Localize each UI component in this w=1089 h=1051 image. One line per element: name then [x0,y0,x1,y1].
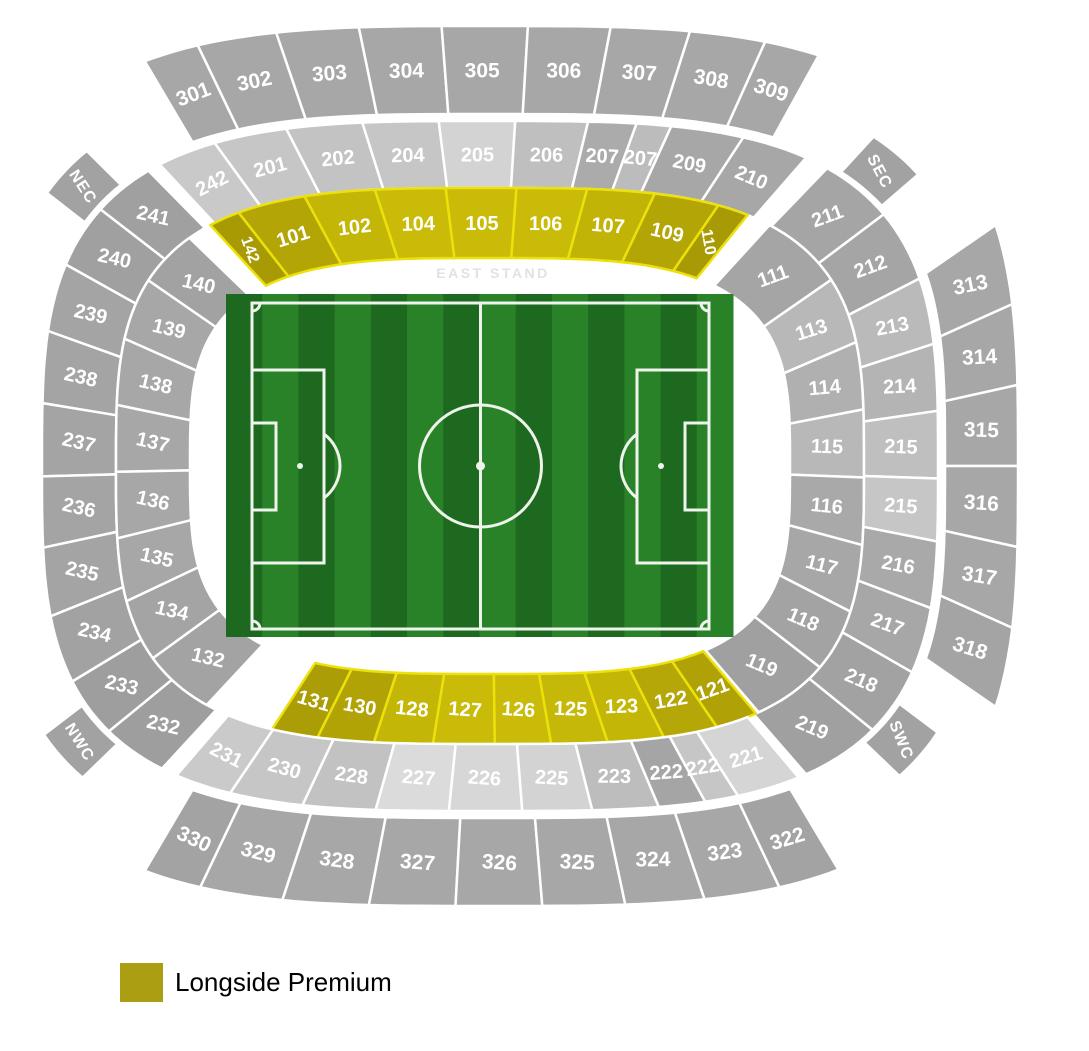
section-123-label: 123 [604,695,638,718]
section-328-label: 328 [318,847,356,875]
section-126-label: 126 [501,698,536,722]
section-106-label: 106 [529,213,563,235]
section-115-label: 115 [810,435,843,458]
section-107-label: 107 [590,214,625,239]
legend: Longside Premium [120,963,392,1002]
section-315-label: 315 [963,418,999,442]
grass-stripe [552,294,589,637]
section-227-label: 227 [401,766,436,791]
left-penalty-spot [297,463,303,469]
section-116-label: 116 [810,494,844,519]
section-207-2-label: 207 [623,146,658,171]
stadium-seating-map: NECSECNWCSWC3013023033043053063073083092… [0,0,1089,1051]
grass-stripe [443,294,480,637]
section-304-label: 304 [389,59,425,83]
section-307-label: 307 [621,61,657,86]
section-125-label: 125 [553,698,587,721]
section-127-label: 127 [448,698,483,722]
legend-swatch-longside-premium [120,963,163,1002]
football-pitch [226,294,734,637]
section-207-label: 207 [585,145,619,169]
section-326-label: 326 [481,850,518,875]
section-323-label: 323 [706,839,744,866]
section-102-label: 102 [337,215,373,241]
grass-stripe [516,294,553,637]
section-225-label: 225 [534,766,569,790]
section-206-label: 206 [530,144,564,166]
grass-stripe [661,294,698,637]
section-128-label: 128 [394,697,429,722]
section-324-label: 324 [635,848,671,871]
section-202-label: 202 [320,146,355,171]
stadium-bowl-svg: NECSECNWCSWC3013023033043053063073083092… [0,0,1089,1051]
grass-stripe [226,294,263,637]
legend-label: Longside Premium [175,967,392,998]
section-305-label: 305 [465,59,500,82]
section-316-label: 316 [963,491,1000,516]
section-214-label: 214 [883,375,918,398]
grass-stripe [407,294,444,637]
section-215-2-label: 215 [883,494,918,519]
grass-stripe [480,294,517,637]
section-223-label: 223 [598,766,632,788]
grass-stripe [588,294,625,637]
grass-stripe [298,294,335,637]
grass-stripe [371,294,408,637]
section-226-label: 226 [467,766,502,790]
section-104-label: 104 [401,213,436,236]
grass-stripe [697,294,734,637]
grass-stripe [624,294,661,637]
section-204-label: 204 [391,145,426,168]
section-114-label: 114 [808,376,843,401]
center-spot [476,462,485,471]
section-303-label: 303 [311,61,348,87]
section-306-label: 306 [546,59,581,82]
right-penalty-spot [658,463,664,469]
section-222-label: 222 [649,761,684,785]
section-327-label: 327 [399,850,436,876]
section-205-label: 205 [461,145,494,167]
east-stand-label: EAST STAND [418,265,568,281]
section-105-label: 105 [465,213,498,235]
grass-stripe [262,294,299,637]
section-325-label: 325 [559,850,595,875]
section-215-label: 215 [884,436,918,459]
section-314-label: 314 [961,345,998,370]
